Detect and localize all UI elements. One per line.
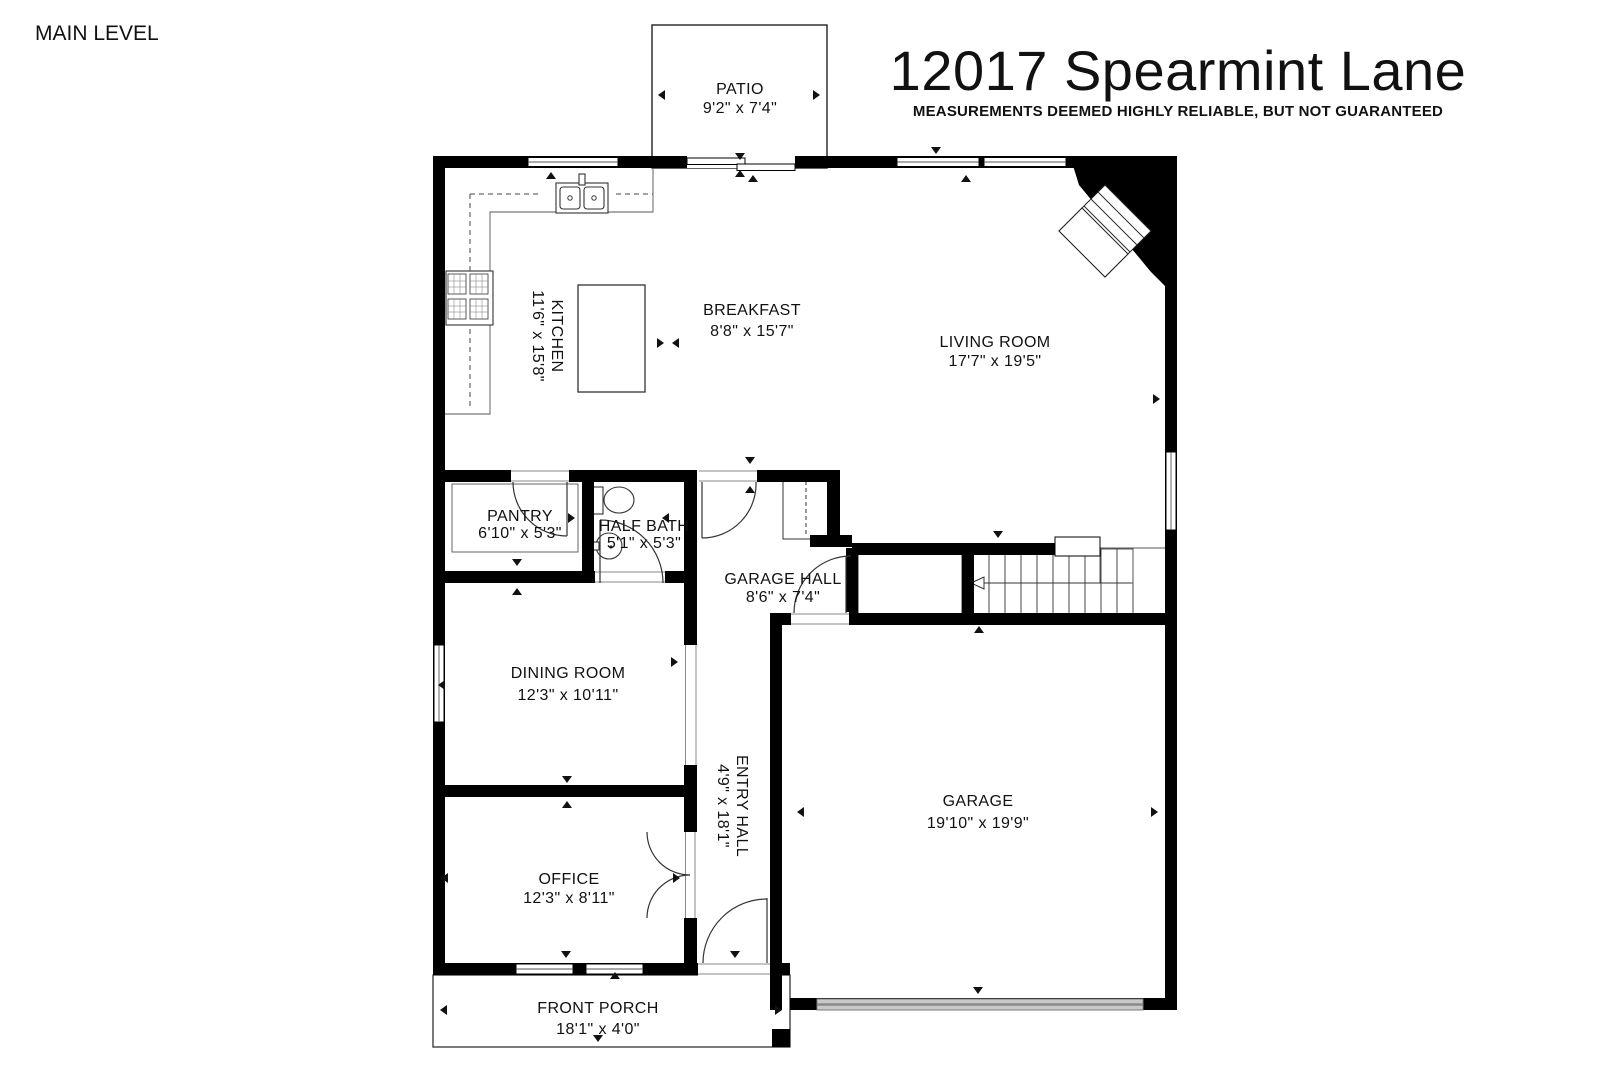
wall-office-right-a: [684, 765, 697, 832]
kitchen-window: [528, 158, 618, 167]
svg-text:18'1" x 4'0": 18'1" x 4'0": [556, 1021, 640, 1038]
wall-left: [433, 156, 445, 975]
svg-text:11'6" x 15'8": 11'6" x 15'8": [529, 290, 546, 382]
porch-post: [772, 1029, 790, 1047]
wall-office-right-b: [684, 918, 697, 975]
svg-text:9'2" x 7'4": 9'2" x 7'4": [703, 100, 777, 117]
office-window-1: [516, 964, 573, 974]
understair-closet: [858, 548, 962, 618]
office-window-2: [586, 964, 643, 974]
room-label-kitchen: KITCHEN 11'6" x 15'8": [529, 290, 565, 382]
svg-text:GARAGE: GARAGE: [943, 793, 1014, 810]
svg-text:GARAGE HALL: GARAGE HALL: [724, 571, 841, 588]
room-label-dining: DINING ROOM 12'3" x 10'11": [511, 665, 626, 704]
floor-plan-canvas: MAIN LEVEL 12017 Spearmint Lane MEASUREM…: [0, 0, 1620, 1080]
svg-text:5'1" x 5'3": 5'1" x 5'3": [607, 535, 681, 552]
room-label-breakfast: BREAKFAST 8'8" x 15'7": [703, 302, 801, 340]
svg-text:DINING ROOM: DINING ROOM: [511, 665, 626, 682]
room-label-half-bath: HALF BATH 5'1" x 5'3": [599, 518, 689, 552]
svg-text:6'10" x 5'3": 6'10" x 5'3": [478, 525, 562, 542]
wall-corridor-upper: [684, 470, 697, 645]
front-door-opening: [698, 962, 770, 976]
wall-closet-bottom: [810, 535, 852, 547]
svg-text:KITCHEN: KITCHEN: [548, 299, 565, 372]
kitchen-island: [578, 285, 645, 392]
floor-plan-page: MAIN LEVEL 12017 Spearmint Lane MEASUREM…: [0, 0, 1620, 1080]
svg-text:PATIO: PATIO: [716, 81, 764, 98]
svg-text:4'9" x 18'1": 4'9" x 18'1": [714, 764, 731, 848]
room-label-living: LIVING ROOM 17'7" x 19'5": [939, 334, 1050, 370]
svg-text:12'3" x 8'11": 12'3" x 8'11": [523, 890, 615, 907]
wall-pantry-right: [582, 470, 594, 583]
svg-text:12'3" x 10'11": 12'3" x 10'11": [517, 687, 618, 704]
svg-text:HALF BATH: HALF BATH: [599, 518, 689, 535]
level-label: MAIN LEVEL: [35, 22, 159, 45]
svg-text:19'10" x 19'9": 19'10" x 19'9": [927, 815, 1029, 832]
wall-stair-left: [962, 543, 974, 625]
half-bath-door-opening: [595, 570, 665, 584]
living-right-window: [1166, 452, 1176, 530]
fireplace-icon: [1059, 156, 1177, 298]
wall-stair-top: [852, 543, 1057, 555]
room-label-entry-hall: ENTRY HALL 4'9" x 18'1": [714, 755, 750, 857]
page-title: 12017 Spearmint Lane: [890, 39, 1467, 102]
pantry-door-opening: [511, 469, 569, 483]
room-label-garage-hall: GARAGE HALL 8'6" x 7'4": [724, 571, 841, 606]
svg-text:17'7" x 19'5": 17'7" x 19'5": [949, 353, 1042, 370]
room-label-front-porch: FRONT PORCH 18'1" x 4'0": [537, 1000, 658, 1038]
room-label-patio: PATIO 9'2" x 7'4": [703, 81, 777, 117]
svg-text:BREAKFAST: BREAKFAST: [703, 302, 801, 319]
svg-text:FRONT PORCH: FRONT PORCH: [537, 1000, 658, 1017]
hall-door-opening: [699, 469, 757, 483]
wall-office-top: [433, 785, 692, 797]
room-label-garage: GARAGE 19'10" x 19'9": [927, 793, 1029, 832]
dining-entry-opening: [686, 645, 697, 765]
hall-closet: [783, 477, 828, 539]
stove-icon: [446, 271, 493, 325]
svg-text:OFFICE: OFFICE: [538, 871, 599, 888]
garage-door-opening: [791, 612, 849, 626]
svg-text:LIVING ROOM: LIVING ROOM: [939, 334, 1050, 351]
garage-vehicle-door: [817, 999, 1143, 1010]
svg-text:8'8" x 15'7": 8'8" x 15'7": [710, 323, 794, 340]
stair-opening: [1055, 537, 1100, 556]
room-label-office: OFFICE 12'3" x 8'11": [523, 871, 615, 907]
sink-icon: [556, 174, 608, 213]
disclaimer: MEASUREMENTS DEEMED HIGHLY RELIABLE, BUT…: [913, 103, 1443, 120]
wall-garage-left: [770, 613, 782, 1010]
svg-text:8'6" x 7'4": 8'6" x 7'4": [746, 589, 820, 606]
stairs: [971, 548, 1165, 618]
windows: [434, 156, 1176, 974]
room-label-pantry: PANTRY 6'10" x 5'3": [478, 508, 562, 542]
svg-text:ENTRY HALL: ENTRY HALL: [733, 755, 750, 857]
svg-text:PANTRY: PANTRY: [487, 508, 553, 525]
toilet-icon: [592, 487, 634, 514]
